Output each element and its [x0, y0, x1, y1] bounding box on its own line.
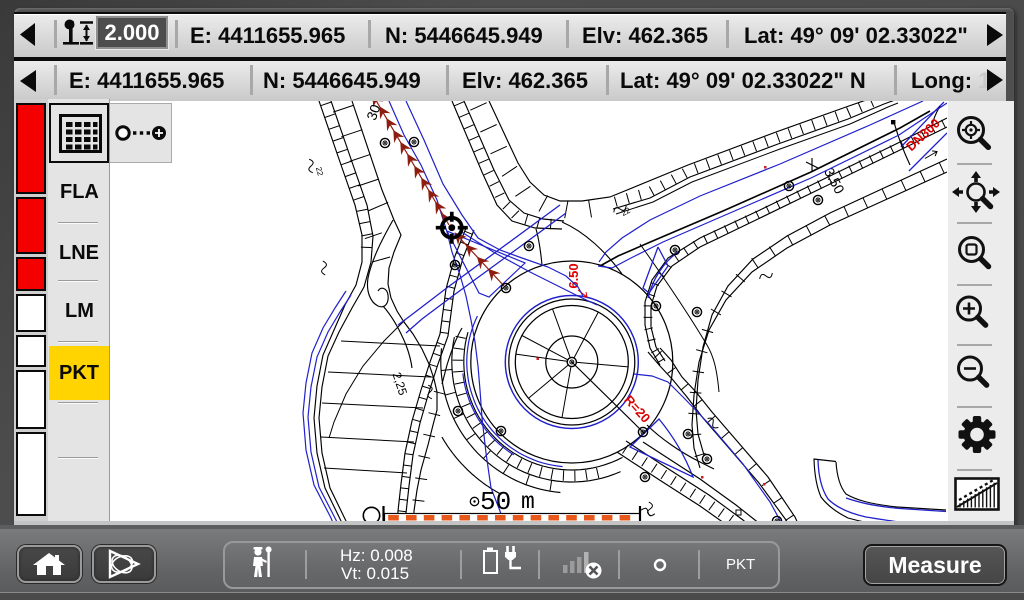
svg-text:22: 22 — [620, 205, 633, 217]
svg-text:22: 22 — [314, 166, 325, 177]
svg-text:30: 30 — [363, 102, 383, 122]
svg-text:R=20: R=20 — [621, 392, 653, 425]
svg-text:50: 50 — [480, 487, 511, 517]
svg-text:m: m — [521, 489, 535, 515]
svg-text:6.50: 6.50 — [566, 263, 581, 288]
svg-text:2,25: 2,25 — [390, 370, 411, 397]
svg-text:DN300: DN300 — [903, 115, 943, 154]
